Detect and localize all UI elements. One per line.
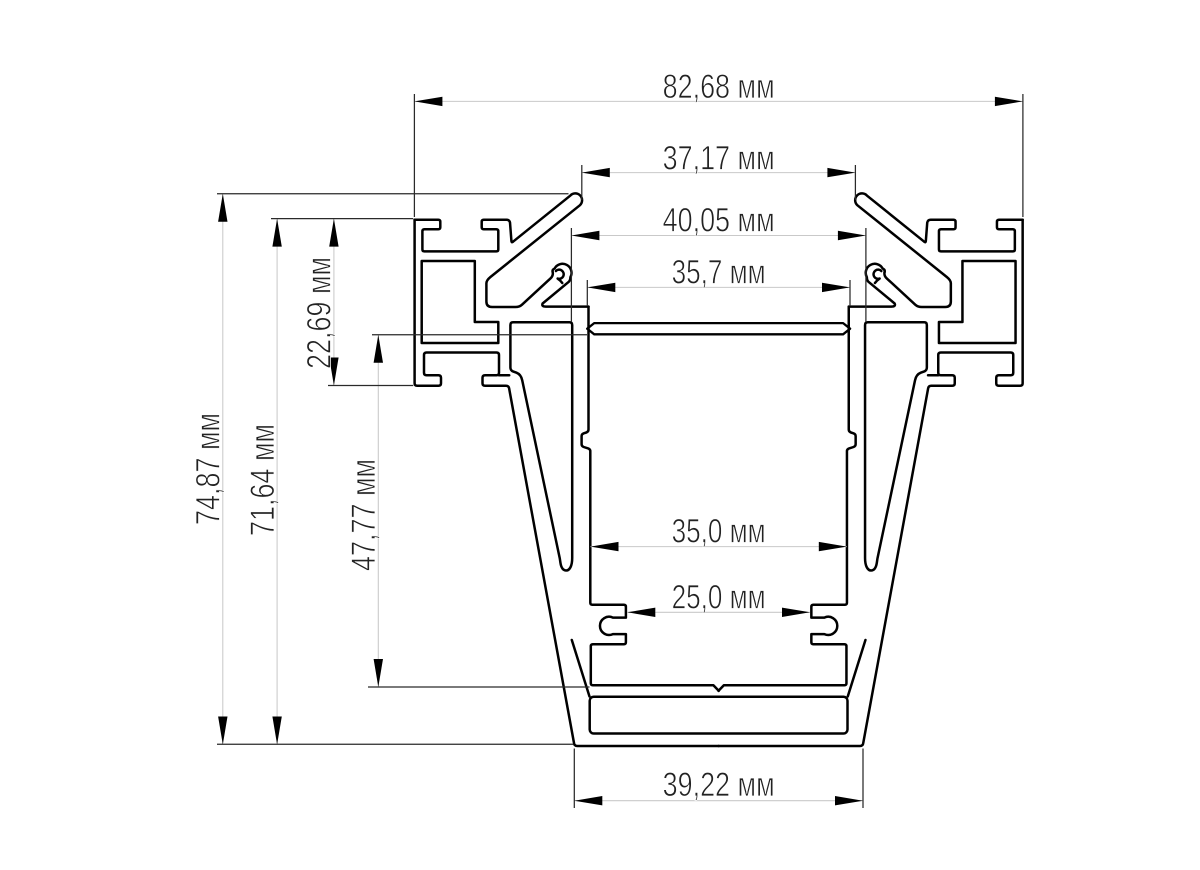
svg-text:47,77 мм: 47,77 мм (345, 459, 383, 571)
svg-text:35,7 мм: 35,7 мм (672, 254, 766, 292)
svg-text:40,05 мм: 40,05 мм (663, 202, 775, 240)
svg-text:37,17 мм: 37,17 мм (663, 140, 775, 178)
svg-text:39,22 мм: 39,22 мм (663, 766, 775, 804)
svg-text:22,69 мм: 22,69 мм (301, 257, 339, 369)
svg-text:74,87 мм: 74,87 мм (190, 413, 228, 525)
svg-text:71,64 мм: 71,64 мм (244, 424, 282, 536)
svg-text:82,68 мм: 82,68 мм (663, 68, 775, 106)
svg-text:35,0 мм: 35,0 мм (672, 513, 766, 551)
svg-text:25,0 мм: 25,0 мм (672, 579, 766, 617)
